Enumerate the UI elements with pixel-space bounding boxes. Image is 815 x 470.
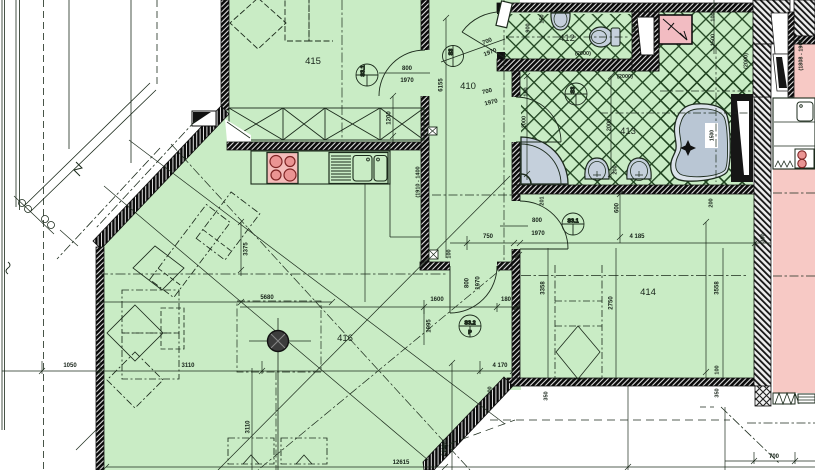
svg-text:1995: 1995 (427, 319, 433, 333)
svg-text:1970: 1970 (400, 78, 414, 84)
svg-text:2000: 2000 (607, 119, 613, 131)
svg-text:1050: 1050 (63, 363, 77, 369)
svg-text:201: 201 (540, 196, 546, 205)
svg-text:5680: 5680 (260, 295, 274, 301)
svg-text:4 185: 4 185 (629, 234, 645, 240)
svg-text:750: 750 (483, 234, 494, 240)
svg-text:S3.1: S3.1 (361, 65, 367, 76)
svg-text:100: 100 (715, 365, 721, 374)
svg-text:150: 150 (540, 14, 546, 23)
svg-text:2000: 2000 (522, 116, 528, 128)
svg-text:3375: 3375 (244, 242, 250, 256)
svg-text:200: 200 (613, 165, 619, 174)
svg-text:600: 600 (615, 202, 621, 213)
svg-text:1200: 1200 (387, 111, 393, 125)
svg-text:100: 100 (488, 386, 494, 395)
svg-text:S3.1: S3.1 (567, 219, 578, 225)
svg-text:(2000): (2000) (575, 51, 591, 57)
svg-text:800: 800 (465, 277, 471, 288)
svg-text:414: 414 (640, 287, 656, 298)
svg-text:100: 100 (711, 12, 717, 21)
svg-text:3110: 3110 (246, 420, 252, 434)
svg-text:3558: 3558 (715, 281, 721, 295)
svg-text:350: 350 (544, 391, 550, 400)
svg-text:1970: 1970 (476, 276, 482, 290)
svg-text:413: 413 (620, 126, 636, 137)
svg-text:800: 800 (532, 218, 543, 224)
svg-text:3110: 3110 (181, 363, 195, 369)
svg-text:415: 415 (305, 56, 321, 67)
svg-text:200: 200 (709, 198, 715, 207)
svg-text:(1910 - 1400: (1910 - 1400 (416, 166, 422, 197)
svg-text:900: 900 (526, 23, 532, 32)
svg-text:4 170: 4 170 (492, 363, 508, 369)
svg-text:900: 900 (632, 23, 638, 32)
svg-text:300: 300 (761, 233, 767, 242)
svg-text:6155: 6155 (439, 78, 445, 92)
svg-text:3358: 3358 (541, 281, 547, 295)
svg-text:P: P (468, 330, 472, 336)
svg-text:S3: S3 (571, 87, 577, 94)
svg-text:100: 100 (524, 87, 530, 96)
svg-text:(2000): (2000) (617, 74, 633, 80)
svg-text:410: 410 (460, 81, 476, 92)
svg-text:416: 416 (337, 333, 353, 344)
svg-text:(1808 - 1908: (1808 - 1908 (799, 39, 805, 70)
svg-text:12615: 12615 (393, 460, 410, 466)
svg-text:1970: 1970 (531, 231, 545, 237)
svg-text:412: 412 (559, 33, 575, 44)
svg-text:180: 180 (501, 297, 512, 303)
svg-text:350: 350 (715, 388, 721, 397)
svg-text:2400: 2400 (442, 444, 448, 456)
svg-text:S3.2: S3.2 (464, 321, 475, 327)
svg-text:800: 800 (402, 66, 413, 72)
svg-text:2750: 2750 (609, 296, 615, 310)
svg-text:1500: 1500 (710, 130, 716, 141)
svg-text:1600: 1600 (430, 297, 444, 303)
svg-text:(2000): (2000) (744, 53, 750, 69)
svg-text:1500: 1500 (711, 34, 717, 46)
svg-text:100: 100 (447, 249, 453, 258)
svg-text:S3: S3 (449, 49, 455, 56)
